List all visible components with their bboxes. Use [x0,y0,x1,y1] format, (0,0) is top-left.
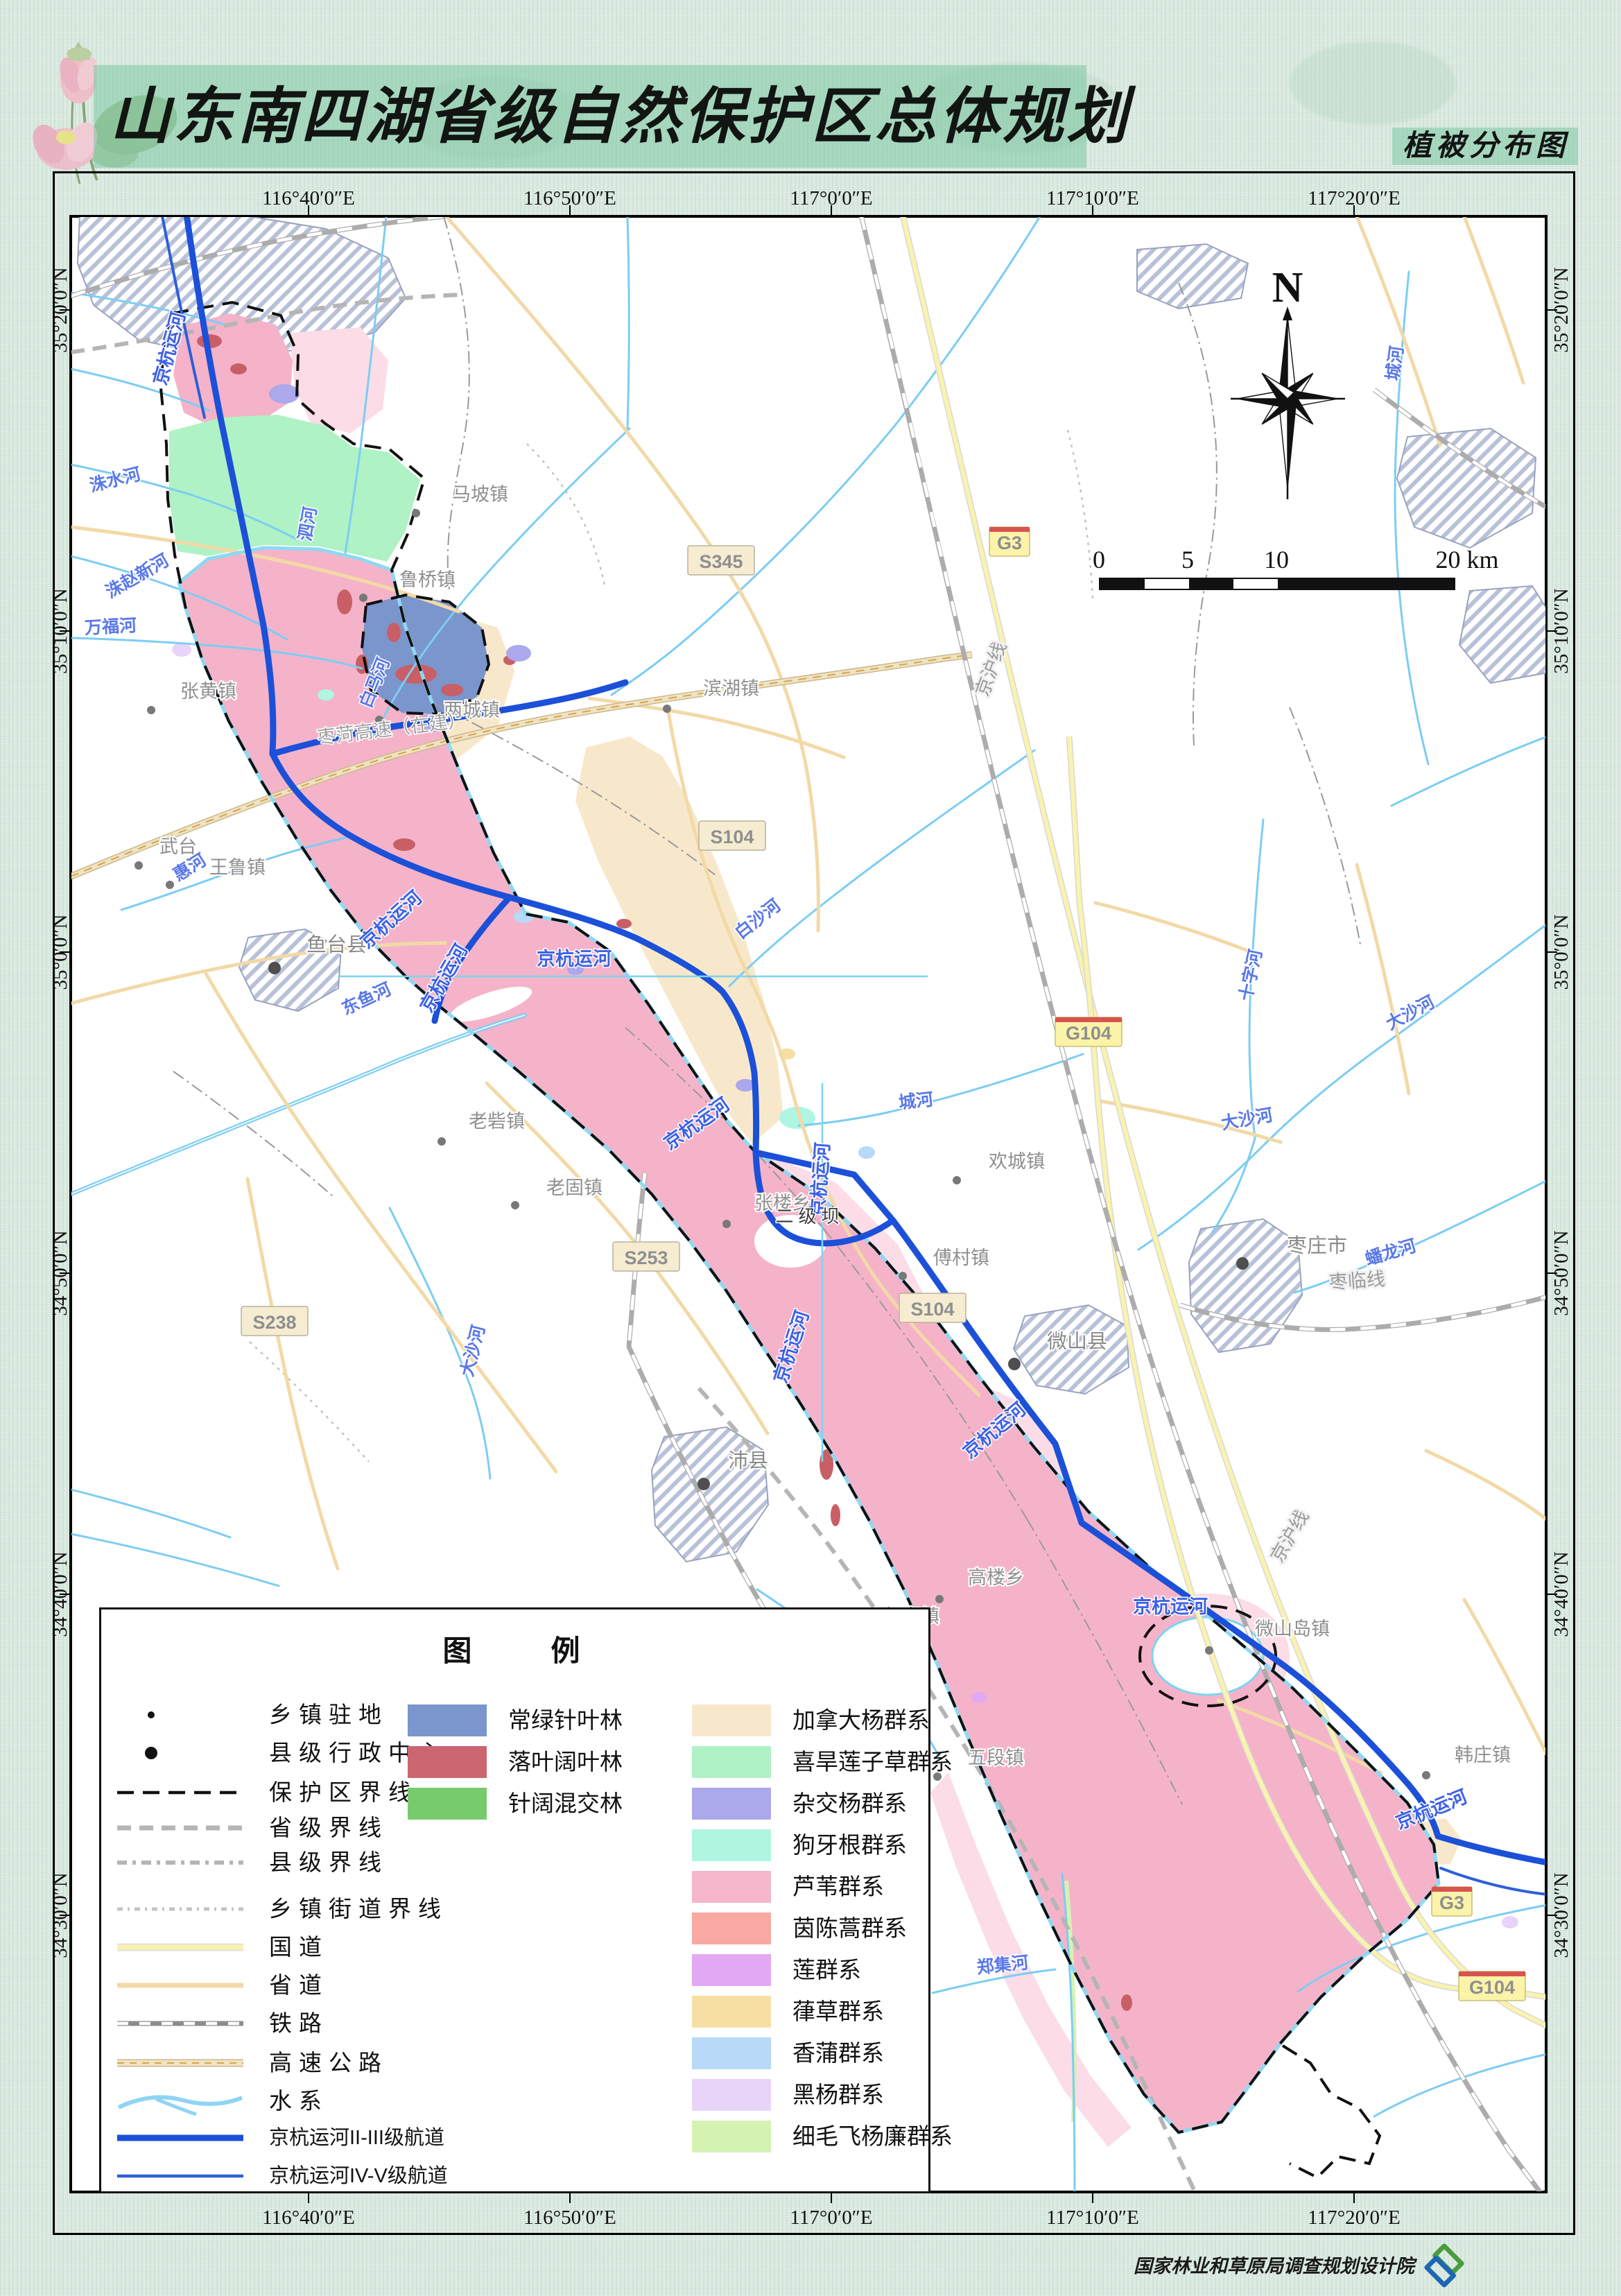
road-shield-G104: G104 [1459,1971,1525,2001]
vegetation-swatch [692,1788,771,1820]
vegetation-swatch [692,2121,771,2152]
town-dot [1422,1771,1430,1779]
legend-label: 京杭运河II-III级航道 [269,2121,444,2155]
legend-label: 省级界线 [269,1811,388,1845]
credit-text: 国家林业和草原局调查规划设计院 [1068,2251,1414,2278]
line-symbol-canal1 [114,2121,246,2155]
town-dot [722,1220,731,1228]
town-label: 微山岛镇 [1255,1619,1330,1639]
town-dot [135,861,143,870]
line-symbol-canal2 [114,2159,246,2193]
town-label: 老砦镇 [469,1111,525,1132]
line-symbol-water [114,2084,246,2118]
scale-bar-segment [1233,579,1278,589]
road-shield-G104: G104 [1055,1017,1122,1046]
longitude-label: 116°40′0″E [253,2207,364,2229]
longitude-label: 117°10′0″E [1037,2207,1148,2229]
legend-label: 芦苇群系 [792,1871,884,1903]
scale-bar-segment [1278,579,1454,589]
scale-bar-segment [1189,579,1233,589]
town-dot [166,881,174,889]
town-label: 武台 [159,836,197,857]
svg-text:S238: S238 [252,1312,296,1333]
point-symbol [114,1736,246,1770]
coordinate-tick [1353,205,1355,215]
river-label: 白沙河 [731,895,784,943]
town-dot [663,705,671,713]
town-dot [953,1176,961,1184]
coordinate-tick [60,1915,69,1916]
town-label: 王鲁镇 [209,857,266,878]
svg-text:S253: S253 [624,1248,668,1268]
legend-label: 葎草群系 [792,1996,884,2028]
railway-label: 京沪线 [1267,1507,1312,1566]
legend-label: 针阔混交林 [508,1788,623,1820]
point-symbol [114,1698,246,1732]
coordinate-tick [831,2193,832,2203]
vegetation-swatch [692,1746,771,1778]
coordinate-tick [1092,205,1093,215]
vegetation-swatch [692,2079,771,2111]
vegetation-swatch [408,1788,487,1820]
legend-label: 茵陈蒿群系 [792,1913,907,1944]
town-dot [899,1272,907,1280]
coordinate-tick [1353,2193,1355,2203]
legend-label: 常绿针叶林 [508,1704,623,1736]
longitude-label: 116°50′0″E [514,2207,625,2229]
legend-label: 乡镇驻地 [269,1698,388,1732]
town-dot [935,1595,944,1603]
svg-text:S345: S345 [699,551,743,572]
road-shield-S238: S238 [241,1306,308,1336]
legend-label: 加拿大杨群系 [792,1704,930,1736]
legend-label: 细毛飞杨廉群系 [792,2121,953,2152]
publisher-logo [1423,2243,1466,2288]
coordinate-tick [569,205,571,215]
coordinate-tick [60,309,69,311]
county-seat-dot [697,1478,710,1490]
legend-label: 水系 [269,2084,329,2118]
line-symbol-sdao [114,1968,246,2003]
river-label: 大沙河 [1220,1105,1274,1134]
coordinate-tick [60,630,69,632]
coordinate-tick [308,2193,309,2203]
legend-label: 铁路 [269,2006,329,2041]
line-symbol-province [114,1811,246,1845]
county-seat-label: 枣庄市 [1287,1234,1347,1257]
legend-title: 图 例 [101,1628,928,1670]
river-label: 洙赵新河 [102,550,172,602]
river-label: 东鱼河 [338,978,394,1019]
town-label: 老固镇 [546,1177,603,1198]
coordinate-tick [1548,309,1557,311]
river-label: 京杭运河 [537,948,612,969]
coordinate-tick [1548,1272,1557,1274]
town-label: 鲁桥镇 [399,569,456,590]
line-symbol-gdao [114,1930,246,1965]
scale-bar-label: 10 [1264,545,1289,574]
town-dot [511,1201,519,1209]
vegetation-swatch [692,1996,771,2028]
legend-label: 狗牙根群系 [792,1829,907,1861]
legend-label: 乡镇街道界线 [269,1892,448,1926]
vegetation-swatch [692,1829,771,1861]
town-dot [359,594,367,602]
town-label: 欢城镇 [989,1151,1045,1172]
legend-label: 国道 [269,1930,329,1965]
svg-text:S104: S104 [910,1299,954,1320]
town-dot [1205,1646,1213,1655]
svg-text:G104: G104 [1066,1023,1111,1044]
line-symbol-expwy [114,2046,246,2080]
scale-bar-label: 0 [1093,545,1105,574]
county-seat-dot [1236,1257,1249,1270]
compass-ray [1288,399,1297,487]
map-sheet: 山东南四湖省级自然保护区总体规划 植被分布图 [0,0,1621,2296]
county-seat-label: 微山县 [1047,1330,1107,1353]
svg-text:G104: G104 [1469,1977,1515,1998]
svg-text:G3: G3 [997,533,1022,553]
vegetation-swatch [692,1913,771,1944]
town-dot [437,1137,446,1146]
coordinate-tick [1548,951,1557,953]
coordinate-tick [1548,1594,1557,1595]
road-shield-S253: S253 [613,1242,679,1271]
river-label: 城河 [1383,345,1407,381]
road-shield-S104: S104 [899,1293,966,1322]
railway-label: 枣临线 [1328,1268,1386,1293]
river-label: 大沙河 [458,1323,489,1379]
scale-bar [1099,578,1455,590]
coordinate-tick [60,951,69,953]
vegetation-swatch [692,2037,771,2069]
legend-label: 杂交杨群系 [792,1788,907,1820]
line-symbol-township [114,1892,246,1926]
vegetation-swatch [692,1954,771,1986]
river-label: 城河 [898,1090,935,1113]
svg-text:G3: G3 [1439,1892,1464,1913]
county-seat-label: 沛县 [728,1449,768,1472]
town-label: 五段镇 [968,1747,1024,1768]
coordinate-tick [1548,1915,1557,1916]
legend-label: 京杭运河IV-V级航道 [269,2159,448,2193]
river-label: 万福河 [84,616,137,638]
svg-text:N: N [1272,264,1303,311]
river-label: 蟠龙河 [1363,1236,1419,1270]
legend-label: 喜旱莲子草群系 [792,1746,953,1778]
town-label: 高楼乡 [968,1567,1024,1588]
line-symbol-reserve [114,1775,246,1810]
coordinate-tick [1548,630,1557,632]
scale-bar-label: 20 km [1435,545,1498,574]
town-label: 马坡镇 [452,484,508,505]
coordinate-tick [1092,2193,1093,2203]
scale-bar-segment [1100,579,1145,589]
coordinate-tick [308,205,309,215]
road-shield-S345: S345 [688,546,754,575]
town-dot [412,509,420,517]
legend-label: 高速公路 [269,2046,388,2080]
north-arrow: N [1220,264,1359,541]
coordinate-tick [60,1594,69,1595]
scale-bar-label: 5 [1181,545,1194,574]
legend-label: 莲群系 [792,1954,861,1986]
legend-label: 保护区界线 [269,1775,418,1810]
town-label: 傅村镇 [933,1248,989,1268]
legend-label: 县级界线 [269,1845,388,1880]
coordinate-tick [60,1272,69,1274]
coordinate-tick [569,2193,571,2203]
line-symbol-county [114,1845,246,1880]
county-seat-dot [1008,1358,1021,1370]
dam-label: 二级坝 [775,1206,844,1227]
town-label: 张黄镇 [180,681,236,702]
road-shield-G3: G3 [989,527,1030,556]
line-symbol-rail [114,2006,246,2041]
town-dot [147,706,155,714]
vegetation-swatch [692,1871,771,1903]
coordinate-tick [831,205,832,215]
legend-box: 图 例 乡镇驻地县级行政中心保护区界线省级界线县级界线乡镇街道界线国道省道铁路高… [99,1607,930,2193]
scale-bar-segment [1145,579,1189,589]
legend-label: 省道 [269,1968,329,2003]
legend-label: 香蒲群系 [792,2037,884,2069]
town-label: 滨湖镇 [703,678,759,699]
town-label: 韩庄镇 [1455,1745,1511,1766]
county-seat-dot [268,962,281,974]
vegetation-swatch [408,1704,487,1736]
vegetation-swatch [692,1704,771,1736]
railway-label: 京沪线 [972,639,1011,699]
longitude-label: 117°20′0″E [1299,2207,1410,2229]
river-label: 京杭运河 [1133,1596,1208,1617]
legend-label: 黑杨群系 [792,2079,884,2111]
road-shield-S104: S104 [699,821,765,850]
vegetation-swatch [408,1746,487,1778]
svg-text:S104: S104 [710,827,754,847]
legend-label: 落叶阔叶林 [508,1746,623,1778]
longitude-label: 117°0′0″E [776,2207,887,2229]
river-label: 十字河 [1236,948,1266,1003]
road-shield-G3: G3 [1432,1887,1472,1916]
